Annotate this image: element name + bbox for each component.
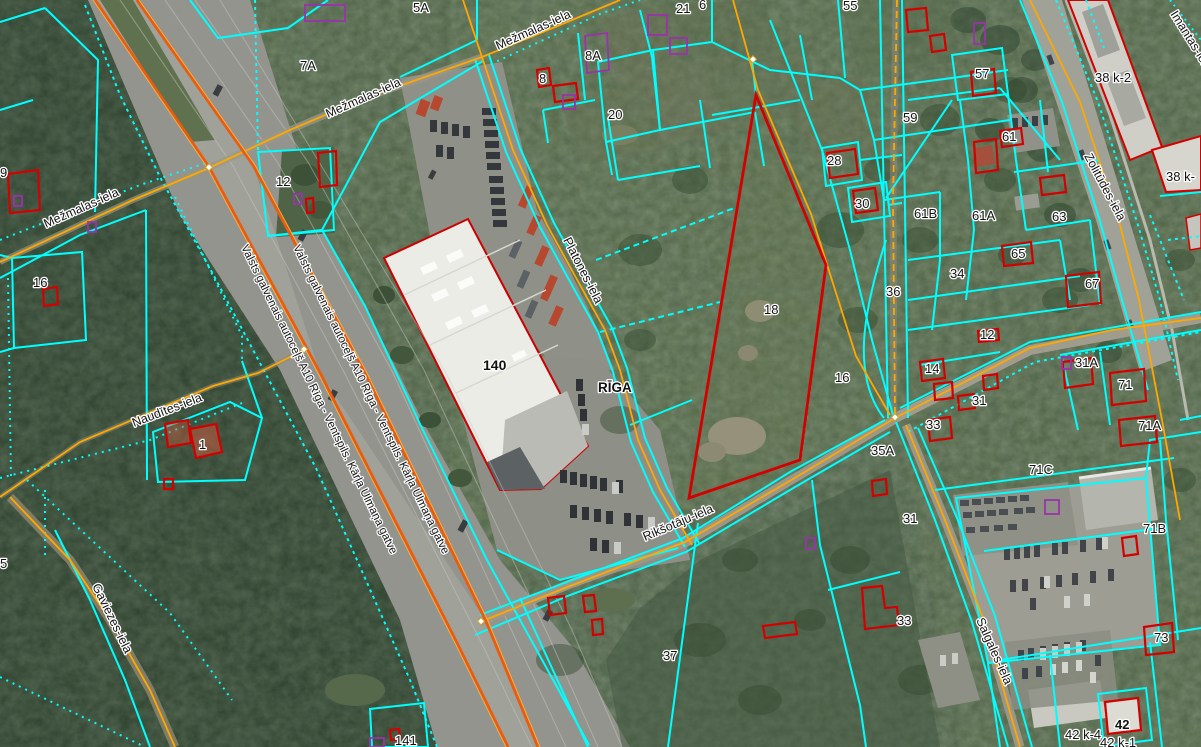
svg-text:63: 63: [1052, 209, 1066, 224]
svg-text:5: 5: [0, 556, 7, 571]
svg-text:30: 30: [855, 196, 869, 211]
svg-text:73: 73: [1154, 630, 1168, 645]
svg-text:61B: 61B: [914, 206, 937, 221]
svg-text:16: 16: [835, 370, 849, 385]
svg-text:57: 57: [975, 66, 989, 81]
svg-text:6: 6: [699, 0, 706, 12]
svg-text:59: 59: [903, 110, 917, 125]
svg-text:71: 71: [1118, 377, 1132, 392]
svg-text:18: 18: [764, 302, 778, 317]
svg-text:21: 21: [676, 1, 690, 16]
svg-text:33: 33: [926, 417, 940, 432]
svg-text:42 k-1: 42 k-1: [1100, 735, 1136, 747]
svg-text:14: 14: [925, 361, 939, 376]
svg-text:37: 37: [663, 648, 677, 663]
svg-text:141: 141: [395, 733, 417, 747]
svg-text:31A: 31A: [1075, 355, 1098, 370]
svg-text:31: 31: [972, 393, 986, 408]
svg-text:16: 16: [33, 275, 47, 290]
svg-text:38 k-2: 38 k-2: [1095, 70, 1131, 85]
svg-text:38 k-: 38 k-: [1166, 169, 1195, 184]
svg-text:31: 31: [903, 511, 917, 526]
svg-text:7A: 7A: [300, 58, 316, 73]
svg-text:12: 12: [276, 174, 290, 189]
svg-text:34: 34: [950, 266, 964, 281]
svg-text:20: 20: [608, 107, 622, 122]
svg-text:61: 61: [1002, 129, 1016, 144]
svg-text:36: 36: [886, 284, 900, 299]
svg-text:12: 12: [980, 327, 994, 342]
svg-text:55: 55: [843, 0, 857, 13]
svg-text:65: 65: [1011, 246, 1025, 261]
svg-text:67: 67: [1085, 276, 1099, 291]
svg-text:5A: 5A: [413, 0, 429, 15]
svg-text:1: 1: [199, 437, 206, 452]
svg-text:140: 140: [483, 357, 507, 373]
svg-text:33: 33: [897, 613, 911, 628]
svg-text:42: 42: [1115, 717, 1129, 732]
svg-text:61A: 61A: [972, 208, 995, 223]
svg-text:RĪGA: RĪGA: [598, 380, 632, 395]
svg-text:71C: 71C: [1029, 462, 1053, 477]
svg-text:42 k-4: 42 k-4: [1065, 727, 1101, 742]
svg-text:71A: 71A: [1138, 418, 1161, 433]
svg-text:8: 8: [539, 71, 546, 86]
svg-text:8A: 8A: [585, 48, 601, 63]
svg-text:35A: 35A: [871, 443, 894, 458]
svg-text:71B: 71B: [1143, 521, 1166, 536]
svg-text:28: 28: [827, 153, 841, 168]
svg-text:9: 9: [0, 165, 7, 180]
